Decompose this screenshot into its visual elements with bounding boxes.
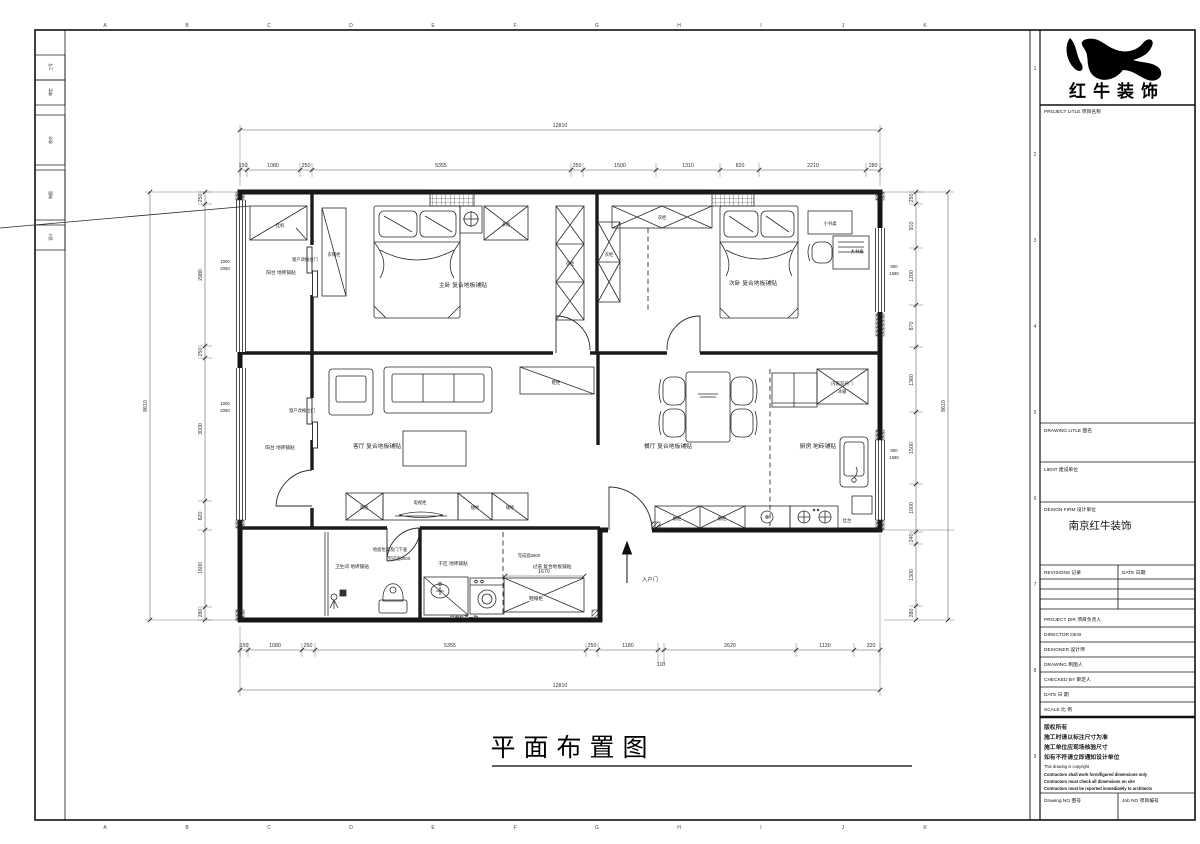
dim-top: 5355 (435, 163, 447, 169)
dim-left: 3000 (198, 423, 204, 435)
drawing-label: DRAWING 制图人 (1044, 661, 1083, 668)
copyright-line: 如有不符请立即通知设计单位 (1044, 753, 1120, 761)
grid-number: 2 (1034, 152, 1037, 158)
project-title-label: PROJECT LITLE 项目名称 (1044, 108, 1101, 115)
revisions-label: REVISIONS 记录 (1044, 569, 1081, 576)
grid-letter: F (513, 23, 516, 29)
grid-letter: D (349, 23, 353, 29)
label-low-cabinet: 矮柜 (471, 504, 480, 511)
dim-left: 2980 (198, 269, 204, 281)
grid-letter: K (923, 23, 927, 29)
window-size-note: 2050 (220, 266, 230, 271)
label-tall-cabinet: 高柜 (360, 504, 369, 511)
room-label-dry: 干区 地砖铺贴 (438, 560, 468, 567)
room-label-second: 次卧 复合地板铺贴 (729, 279, 777, 287)
label-shoe-hat-cabinet: 鞋帽柜 (529, 595, 543, 602)
master-bed (374, 206, 460, 318)
dining-set (659, 372, 757, 442)
label-kitchen-cabinet: 橱柜 (718, 515, 727, 522)
room-label-balcony2: 阳台 地砖铺贴 (265, 444, 295, 451)
tv-wall-cabinets (346, 493, 528, 520)
grid-letter: A (103, 23, 107, 29)
entry-arrow (623, 542, 632, 583)
second-bed (720, 206, 798, 318)
dim-bottom: 150 (240, 643, 249, 649)
grid-numbers: 1 2 3 4 5 6 7 8 9 (1034, 66, 1037, 760)
shoe-hat-cabinet (504, 578, 584, 612)
ac-outdoor-unit (430, 192, 474, 206)
company-name: 红牛装饰 (1069, 81, 1165, 101)
room-label-kitchen: 厨房 地砖铺贴 (800, 442, 837, 450)
grid-letters: A B C D E F G H I J K A B C D E F G H I … (103, 23, 927, 831)
drawing-no-label: Drawing NO 图号 (1044, 798, 1081, 804)
cad-sheet: { "sheet": { "drawing_title": "平面布置图", "… (0, 0, 1200, 844)
dim-right: 280 (909, 609, 915, 618)
window-size-note: 900 (890, 448, 898, 453)
room-label-dining: 餐厅 复合地板铺贴 (644, 442, 692, 450)
label-cloak-cabinet: 衣帽柜 (328, 251, 342, 258)
second-wardrobe (598, 222, 620, 302)
triple-sofa (384, 367, 492, 413)
margin-cell-label: 审定 (48, 88, 53, 96)
balcony-door (276, 470, 312, 506)
built-in-fridge-cabinet (817, 369, 868, 404)
grid-letter: C (267, 825, 271, 831)
copyright-line-en: Contractors shall work form/figured dime… (1044, 772, 1148, 777)
dim-right: 870 (909, 322, 915, 331)
kitchen-sink (840, 437, 868, 487)
note-counter-align: 台面标高一致 (450, 614, 478, 621)
dim-bottom: 1080 (269, 643, 281, 649)
furniture (0, 192, 872, 616)
dim-right: 240 (909, 534, 915, 543)
dim-left: 250 (198, 194, 204, 203)
copyright-line: 版权所有 (1043, 723, 1067, 731)
note-sliding-door2: 窗户改推拉门 (289, 407, 315, 414)
dim-top: 250 (573, 163, 582, 169)
dim-hall-width: 1670 (538, 569, 550, 575)
copyright-line-en: This drawing is copyright (1044, 764, 1090, 769)
single-sofa (329, 369, 373, 415)
grid-letter: J (842, 23, 845, 29)
washbasin-counter (424, 577, 468, 615)
dim-overall-width-top: 12810 (553, 123, 568, 129)
director-label: DIRECTOR DESI (1044, 632, 1082, 638)
drawing-title-label: DRAWING LITLE 图名 (1044, 427, 1092, 434)
label-tv-cabinet: 电视柜 (414, 499, 428, 506)
label-stove: 灶台 (843, 517, 852, 524)
dim-bottom: 1180 (622, 643, 633, 649)
grid-letter: I (760, 825, 761, 831)
shower-partition (325, 532, 346, 616)
label-ac: 挂机 (276, 222, 285, 229)
design-firm-value: 南京红牛装饰 (1069, 519, 1132, 532)
copyright-line: 施工时请以标注尺寸为准 (1044, 733, 1108, 741)
dim-left: 280 (198, 609, 204, 618)
dim-top: 250 (302, 163, 311, 169)
designer-label: DESIGNER 设计师 (1044, 646, 1085, 653)
note-sliding-door1: 窗户改推拉门 (292, 256, 318, 263)
second-bedroom-door (667, 316, 700, 353)
entry-door (609, 487, 652, 530)
note-floor-raise: 地面抬高及门下垂 (373, 546, 408, 553)
sheet-frame (35, 30, 1195, 820)
dim-bottom: 320 (867, 643, 876, 649)
window-size-note: 1580 (889, 455, 899, 460)
dim-top: 150 (239, 163, 248, 169)
toilet (379, 584, 407, 613)
dim-right: 250 (909, 194, 915, 203)
margin-cell-label: 设计 (48, 233, 53, 241)
margin-revision-cells (35, 55, 65, 250)
design-firm-label: DESIGN FIRM 设计单位 (1044, 506, 1096, 513)
label-entry-door: 入户门 (642, 575, 658, 583)
gas-stove (790, 506, 838, 528)
note-ffl2900: 完成面2900 (518, 552, 541, 559)
grid-letter: F (513, 825, 516, 831)
dim-right: 1000 (909, 502, 915, 514)
dim-right: 1200 (909, 270, 915, 282)
copyright-line: 施工单位应现场核验尺寸 (1044, 743, 1108, 751)
grid-number: 8 (1034, 668, 1037, 674)
dim-overall-height-right: 8610 (941, 400, 947, 412)
margin-cell-label: 校对 (48, 136, 53, 144)
dim-right: 1360 (909, 374, 915, 386)
grid-letter: E (431, 825, 435, 831)
grid-letter: J (842, 825, 845, 831)
margin-cell-labels: 工号 审定 校对 制图 设计 (48, 63, 53, 241)
grid-number: 9 (1034, 754, 1037, 760)
dim-bottom: 5355 (444, 643, 456, 649)
label-big-desk: 大书桌 (851, 248, 865, 255)
copyright-line-en: Contractors must be reported immediately… (1044, 786, 1153, 791)
grid-number: 7 (1034, 582, 1037, 588)
label-kitchen-cabinet: 橱柜 (673, 515, 682, 522)
dim-right: 1500 (909, 442, 915, 454)
grid-letter: H (677, 825, 681, 831)
window-size-note: 2050 (220, 408, 230, 413)
dim-bottom: 1130 (819, 643, 830, 649)
dim-right: 1300 (909, 569, 915, 581)
dim-top: 1500 (614, 163, 626, 169)
room-label-living: 客厅 复合地板铺贴 (353, 442, 401, 450)
ac-outdoor-unit (712, 192, 754, 206)
drawing-title: 平面布置图 (490, 734, 655, 762)
dim-top: 1080 (267, 163, 279, 169)
plan-labels: 主卧 复合地板铺贴 次卧 复合地板铺贴 客厅 复合地板铺贴 餐厅 复合地板铺贴 … (265, 214, 864, 621)
margin-cell-label: 工号 (48, 63, 53, 71)
bull-logo-icon (1067, 38, 1083, 71)
grid-letter: E (431, 23, 435, 29)
copyright-block: 版权所有 施工时请以标注尺寸为准 施工单位应现场核验尺寸 如有不符请立即通知设计… (1043, 723, 1153, 791)
label-wardrobe: 衣柜 (566, 260, 575, 267)
window-size-note: 1580 (889, 271, 899, 276)
room-label-bath: 卫生间 地砖铺贴 (335, 563, 369, 570)
grid-number: 1 (1034, 66, 1037, 72)
grid-number: 5 (1034, 410, 1037, 416)
dim-bottom-sub: 110 (657, 662, 665, 668)
dim-overall-height-left: 8610 (143, 400, 149, 412)
bull-logo-icon (1082, 39, 1161, 81)
grid-number: 3 (1034, 238, 1037, 244)
grid-number: 6 (1034, 496, 1037, 502)
dim-top: 280 (869, 163, 878, 169)
dimension-ticks (148, 128, 950, 692)
title-block: 红牛装饰 PROJECT LITLE 项目名称 DRAWING LITLE 图名… (1040, 38, 1195, 820)
label-shoe-cabinet: 鞋柜 (552, 379, 561, 386)
ceiling-lamp-symbol (463, 211, 479, 227)
label-low-cabinet: 矮柜 (506, 504, 515, 511)
grid-letter: D (349, 825, 353, 831)
grid-letter: G (595, 825, 599, 831)
grid-number: 4 (1034, 324, 1037, 330)
copyright-line-en: Contractors must check all dimensions on… (1044, 779, 1135, 784)
balcony-ac-unit (0, 206, 307, 240)
grid-letter: K (923, 825, 927, 831)
label-small-desk: 小书桌 (824, 220, 838, 227)
checked-label: CHECKED BY 审定人 (1044, 676, 1091, 683)
dim-bottom: 250 (588, 643, 597, 649)
dim-bottom: 250 (304, 643, 313, 649)
dimension-labels: 12810 12810 8610 8610 150 1080 250 5355 … (143, 123, 947, 689)
job-no-label: Job NO 项目编号 (1122, 797, 1159, 804)
window-size-note: 900 (890, 264, 898, 269)
dim-top: 2210 (807, 163, 819, 169)
kitchen-side-cabinet (852, 496, 872, 514)
shower-head-icon (331, 594, 337, 600)
dim-top: 1310 (682, 163, 694, 169)
label-fridge-note: 冰箱 (838, 388, 847, 395)
dim-top: 820 (736, 163, 745, 169)
grid-letter: B (185, 23, 189, 29)
dim-left: 1600 (198, 562, 204, 574)
room-label-master: 主卧 复合地板铺贴 (439, 281, 487, 289)
grid-letter: G (595, 23, 599, 29)
date-col-label: DATE 日期 (1122, 570, 1146, 576)
master-bedroom-door (556, 316, 590, 353)
label-wardrobe: 衣柜 (658, 214, 667, 221)
label-wardrobe: 衣柜 (502, 221, 511, 228)
coffee-table (403, 431, 466, 466)
grid-letter: I (760, 23, 761, 29)
grid-letter: B (185, 825, 189, 831)
dim-left: 620 (198, 512, 204, 521)
dim-bottom: 2620 (724, 643, 736, 649)
grid-letter: A (103, 825, 107, 831)
dim-overall-width-bottom: 12810 (553, 683, 568, 689)
scale-label: SCALE 比 例 (1044, 706, 1072, 713)
margin-cell-label: 制图 (48, 191, 53, 199)
floor-drain-icon (340, 590, 346, 596)
fridge (772, 373, 817, 407)
window-size-note: 1000 (220, 401, 230, 406)
label-wardrobe: 衣柜 (605, 251, 614, 258)
dim-right: 910 (909, 222, 915, 231)
grid-letter: H (677, 23, 681, 29)
room-label-balcony1: 阳台 地砖铺贴 (266, 269, 296, 276)
dim-left: 250 (198, 348, 204, 357)
washing-machine (470, 578, 504, 614)
floor-plan-sheet: 工号 审定 校对 制图 设计 A B C D E F G H I J K A B… (0, 0, 1200, 844)
date-label: DATE 日 期 (1044, 692, 1069, 698)
project-dir-label: PROJECT DIR 项目负责人 (1044, 616, 1101, 623)
client-label: LIENT 建设单位 (1044, 466, 1078, 473)
label-fridge-note: 内嵌双开门 (831, 380, 852, 387)
grid-letter: C (267, 23, 271, 29)
note-ffl2600: 完成面2600 (388, 555, 411, 562)
window-size-note: 1000 (220, 259, 230, 264)
company-logo: 红牛装饰 (1067, 38, 1165, 101)
